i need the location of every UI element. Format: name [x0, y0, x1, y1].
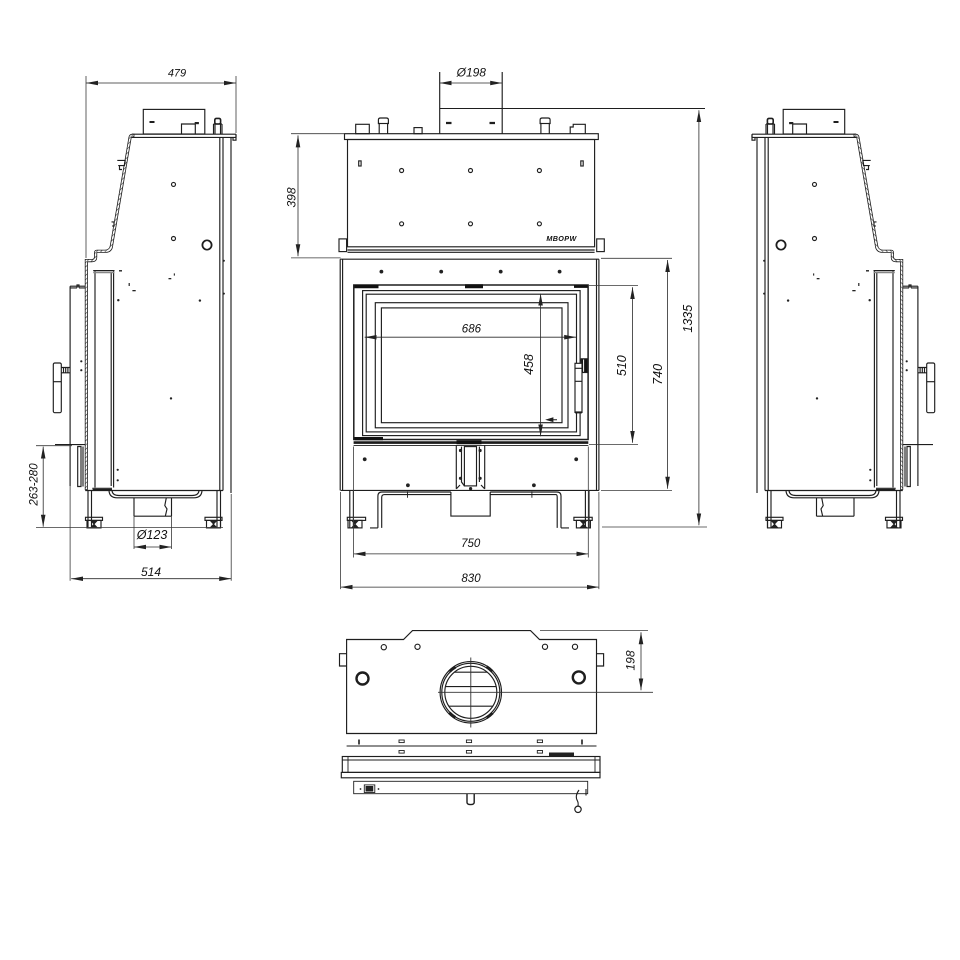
svg-text:510: 510: [615, 355, 629, 376]
svg-text:830: 830: [461, 573, 481, 585]
svg-text:479: 479: [168, 67, 186, 79]
svg-text:740: 740: [651, 364, 665, 385]
svg-text:514: 514: [141, 565, 161, 579]
svg-text:Ø123: Ø123: [136, 528, 168, 542]
svg-text:1335: 1335: [681, 305, 695, 333]
svg-text:198: 198: [624, 650, 638, 670]
svg-text:686: 686: [462, 324, 482, 336]
svg-text:Ø198: Ø198: [456, 66, 487, 80]
svg-text:458: 458: [522, 354, 536, 375]
svg-text:MBOPW: MBOPW: [546, 234, 577, 243]
svg-text:263-280: 263-280: [29, 463, 41, 507]
svg-text:750: 750: [461, 538, 481, 550]
svg-text:398: 398: [284, 187, 298, 207]
